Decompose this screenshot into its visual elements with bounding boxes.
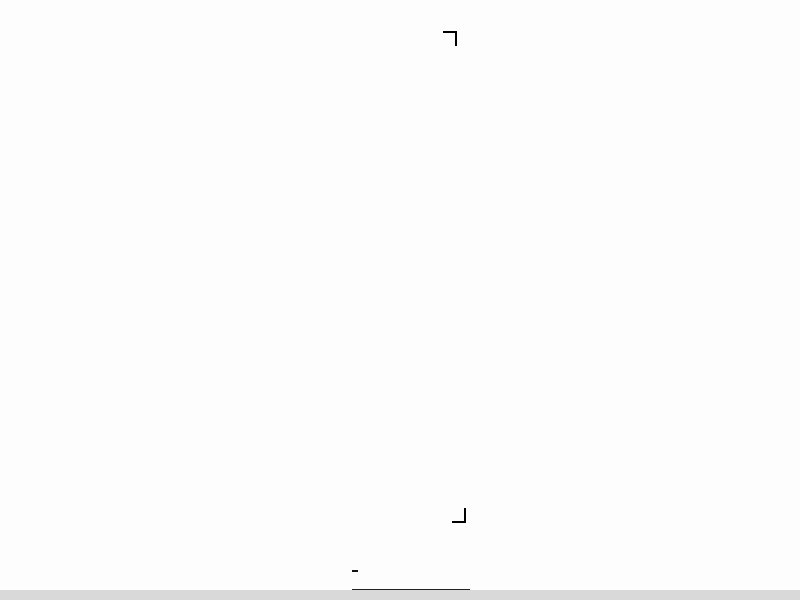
floorplan-canvas bbox=[0, 0, 800, 600]
section-mark-top-bracket bbox=[443, 31, 457, 46]
section-mark-bottom-bracket bbox=[452, 508, 466, 523]
bottom-gray-strip bbox=[0, 590, 800, 600]
title-block bbox=[352, 568, 358, 572]
